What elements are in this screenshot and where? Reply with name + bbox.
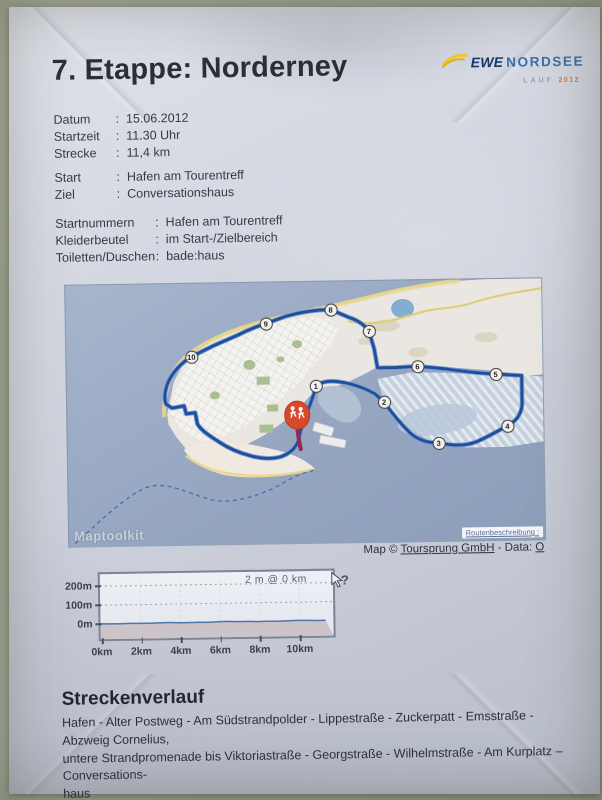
attribution-prefix: Map ©: [363, 544, 400, 557]
info-label: Strecke: [54, 145, 116, 163]
harbour-bay: [318, 385, 361, 423]
info-value: 15.06.2012: [115, 110, 188, 128]
runner-marker-icon: [285, 401, 311, 449]
info-value: Hafen am Tourentreff: [116, 167, 244, 186]
data-source-link[interactable]: O: [535, 541, 544, 553]
maptoolkit-watermark: Maptoolkit: [74, 528, 144, 544]
route-description-link[interactable]: Routenbeschreibung :: [462, 526, 544, 538]
info-value: bade:haus: [156, 247, 225, 265]
waypoint-marker-5: 5: [489, 367, 502, 380]
logo-sub-label: LAUF: [523, 77, 554, 84]
logo-brand: EWE: [471, 54, 504, 71]
y-axis-label: 0m: [56, 618, 92, 631]
logo-sub-year: 2012: [558, 77, 580, 84]
waypoint-marker-2: 2: [377, 395, 390, 408]
info-row: Kleiderbeutelim Start-/Zielbereich: [55, 229, 283, 250]
x-axis-label: 2km: [124, 645, 158, 658]
logo-swoosh-icon: [442, 52, 468, 72]
waypoint-marker-9: 9: [259, 317, 272, 330]
route-section-heading: Streckenverlauf: [61, 687, 204, 711]
x-axis-label: 10km: [283, 643, 317, 656]
info-label: Startnummern: [55, 214, 155, 233]
waypoint-marker-1: 1: [309, 379, 322, 392]
info-group: Datum15.06.2012Startzeit11.30 UhrStrecke…: [53, 108, 281, 163]
x-axis-tick: [260, 636, 262, 642]
info-row: Toiletten/Duschenbade:haus: [56, 246, 284, 267]
info-row: ZielConversationshaus: [55, 183, 283, 204]
x-axis-tick: [102, 638, 104, 644]
info-label: Ziel: [55, 186, 117, 204]
info-value: Conversationshaus: [117, 184, 235, 203]
y-axis-tick: [95, 585, 101, 587]
x-axis-label: 4km: [164, 645, 198, 658]
waypoint-marker-8: 8: [324, 303, 337, 316]
waypoint-marker-7: 7: [362, 324, 375, 337]
island-basemap: [65, 278, 545, 546]
elevation-axis-labels: 200m100m0m0km2km4km6km8km10km: [3, 2, 594, 11]
info-row: Strecke11,4 km: [54, 142, 282, 163]
logo-brand2: NORDSEE: [506, 53, 584, 69]
x-axis-tick: [141, 638, 143, 644]
x-axis-label: 0km: [85, 646, 119, 659]
elevation-tooltip: 2 m @ 0 km: [245, 573, 307, 586]
y-axis-tick: [95, 623, 101, 625]
y-axis-tick: [95, 604, 101, 606]
route-description-text: Hafen - Alter Postweg - Am Südstrandpold…: [62, 707, 575, 800]
toursprung-link[interactable]: Toursprung GmbH: [400, 542, 494, 555]
waypoint-marker-10: 10: [185, 350, 198, 363]
svg-text:?: ?: [341, 572, 349, 587]
route-map: 12345678910 Maptoolkit Routenbeschreibun…: [64, 277, 546, 547]
event-logo: EWE NORDSEE LAUF 2012: [442, 51, 583, 89]
y-axis-label: 200m: [56, 580, 92, 593]
y-axis-label: 100m: [56, 599, 92, 612]
info-value: Hafen am Tourentreff: [155, 212, 283, 231]
x-axis-label: 6km: [203, 644, 237, 657]
info-value: 11,4 km: [116, 144, 170, 162]
info-label: Startzeit: [54, 128, 116, 146]
info-value: im Start-/Zielbereich: [155, 229, 278, 248]
photographed-document: 7. Etappe: Norderney EWE NORDSEE LAUF 20…: [0, 0, 602, 800]
x-axis-tick: [300, 635, 302, 641]
info-value: 11.30 Uhr: [116, 127, 181, 145]
page-title: 7. Etappe: Norderney: [52, 50, 348, 88]
waypoint-marker-4: 4: [501, 419, 514, 432]
x-axis-label: 8km: [243, 643, 277, 656]
info-group: StartHafen am TourentreffZielConversatio…: [54, 166, 282, 204]
x-axis-tick: [181, 637, 183, 643]
paper-sheet: 7. Etappe: Norderney EWE NORDSEE LAUF 20…: [9, 7, 600, 794]
elevation-profile-chart: 2 m @ 0 km ?: [98, 569, 336, 642]
waypoint-marker-6: 6: [411, 360, 424, 373]
info-group: StartnummernHafen am TourentreffKleiderb…: [55, 212, 283, 267]
info-label: Start: [54, 169, 116, 187]
info-label: Datum: [53, 111, 115, 129]
info-label: Kleiderbeutel: [55, 231, 155, 250]
event-info-table: Datum15.06.2012Startzeit11.30 UhrStrecke…: [53, 108, 283, 274]
attribution-middle: - Data:: [494, 541, 535, 554]
waypoint-marker-3: 3: [432, 436, 445, 449]
x-axis-tick: [220, 636, 222, 642]
harbour-piers: [312, 421, 346, 448]
info-label: Toiletten/Duschen: [56, 248, 156, 267]
